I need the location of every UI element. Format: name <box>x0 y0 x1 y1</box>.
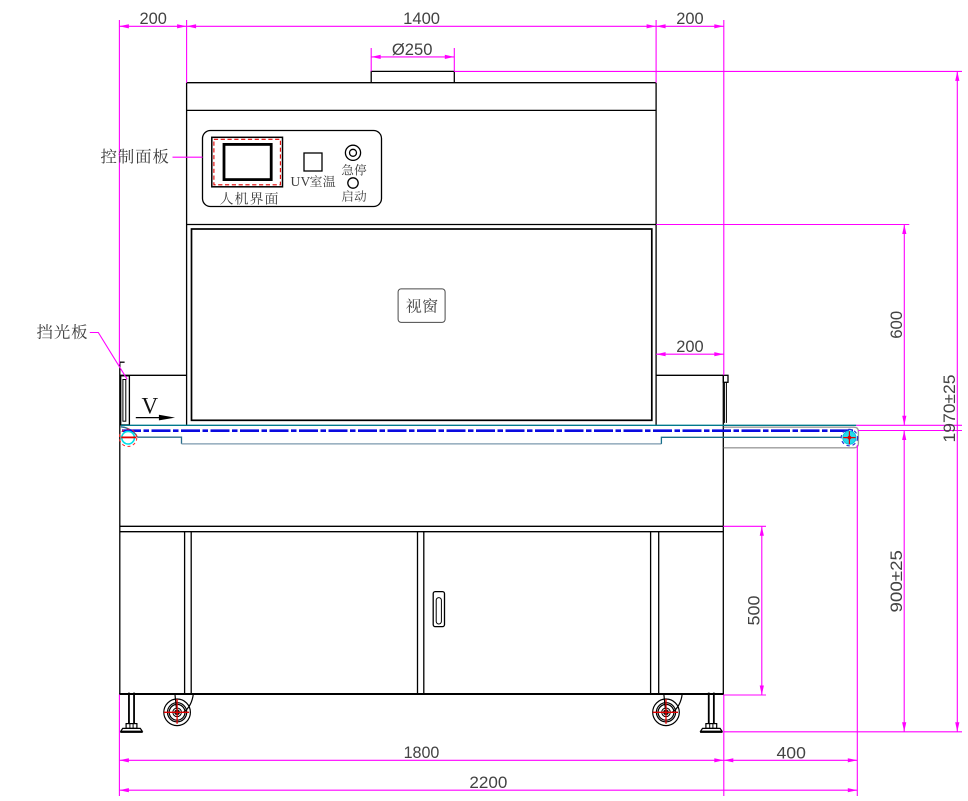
svg-text:200: 200 <box>140 10 167 28</box>
svg-text:600: 600 <box>888 311 906 339</box>
svg-text:Ø250: Ø250 <box>392 41 433 59</box>
svg-text:500: 500 <box>745 596 763 626</box>
svg-text:1400: 1400 <box>403 10 440 28</box>
svg-text:2200: 2200 <box>469 774 507 792</box>
svg-text:1800: 1800 <box>404 744 440 762</box>
svg-text:200: 200 <box>676 10 703 28</box>
svg-text:900±25: 900±25 <box>888 550 906 613</box>
svg-text:200: 200 <box>676 338 703 356</box>
svg-text:V: V <box>141 394 158 419</box>
svg-text:UV: UV <box>291 174 311 189</box>
svg-text:1970±25: 1970±25 <box>941 375 959 443</box>
svg-text:400: 400 <box>777 744 806 762</box>
